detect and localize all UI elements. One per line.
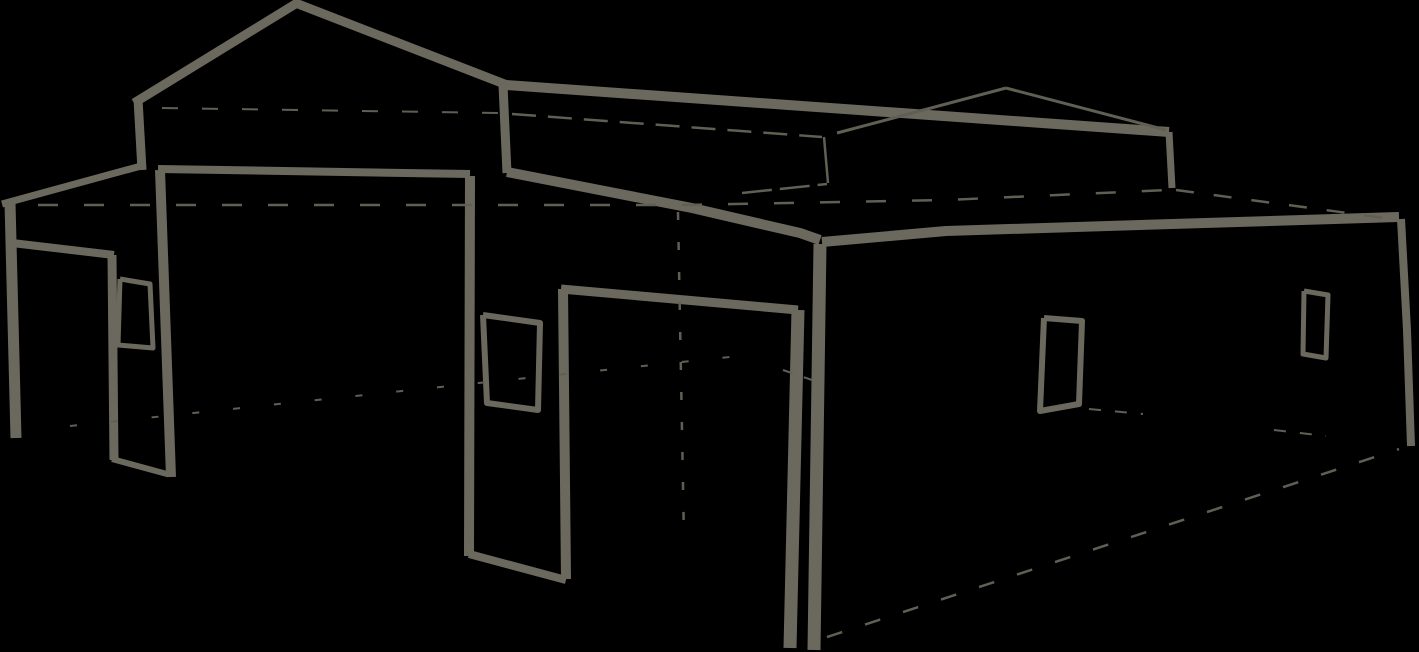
back-wall-corner-line xyxy=(824,137,828,183)
front-opening-left-jamb xyxy=(563,289,566,579)
raised-roof-back-corner-edge xyxy=(1169,132,1172,188)
gable-left-roof-slope xyxy=(134,3,297,103)
hidden-eave-level-line xyxy=(162,108,500,113)
building-sketch-svg xyxy=(0,0,1419,652)
gable-right-roof-slope xyxy=(293,2,507,85)
back-wall-base-line xyxy=(742,184,827,193)
building-sketch xyxy=(0,0,1419,652)
gable-opening-sill-line xyxy=(469,554,566,580)
front-opening-right-post xyxy=(790,310,798,648)
lean-to-roof-edge xyxy=(2,166,141,204)
floor-hidden-line-right xyxy=(827,449,1399,637)
floor-mark-right-b xyxy=(1274,430,1326,436)
lean-to-left-post xyxy=(10,203,16,438)
right-wall-corner-edge xyxy=(1401,219,1411,446)
gable-opening-header xyxy=(158,169,470,174)
front-wall-window-frame xyxy=(483,315,540,410)
gable-opening-left-jamb xyxy=(160,170,171,477)
raised-roof-fascia xyxy=(506,85,1169,132)
lean-to-right-post xyxy=(112,255,114,460)
right-wall-window-near-frame xyxy=(1040,318,1082,411)
floor-mark-right-a xyxy=(1089,409,1143,414)
corner-post xyxy=(814,244,820,650)
gable-left-wall-edge xyxy=(138,99,142,170)
gable-right-wall-edge xyxy=(503,85,507,173)
interior-corner-hidden-line xyxy=(678,212,684,540)
lean-to-sill-line xyxy=(112,459,167,474)
main-eave-right xyxy=(822,217,1399,242)
right-wall-window-far-frame xyxy=(1303,291,1328,358)
gable-opening-right-jamb xyxy=(469,176,470,556)
left-wall-window-frame xyxy=(118,279,153,348)
raised-roof-base-line xyxy=(512,114,822,137)
lean-to-header xyxy=(12,243,114,255)
